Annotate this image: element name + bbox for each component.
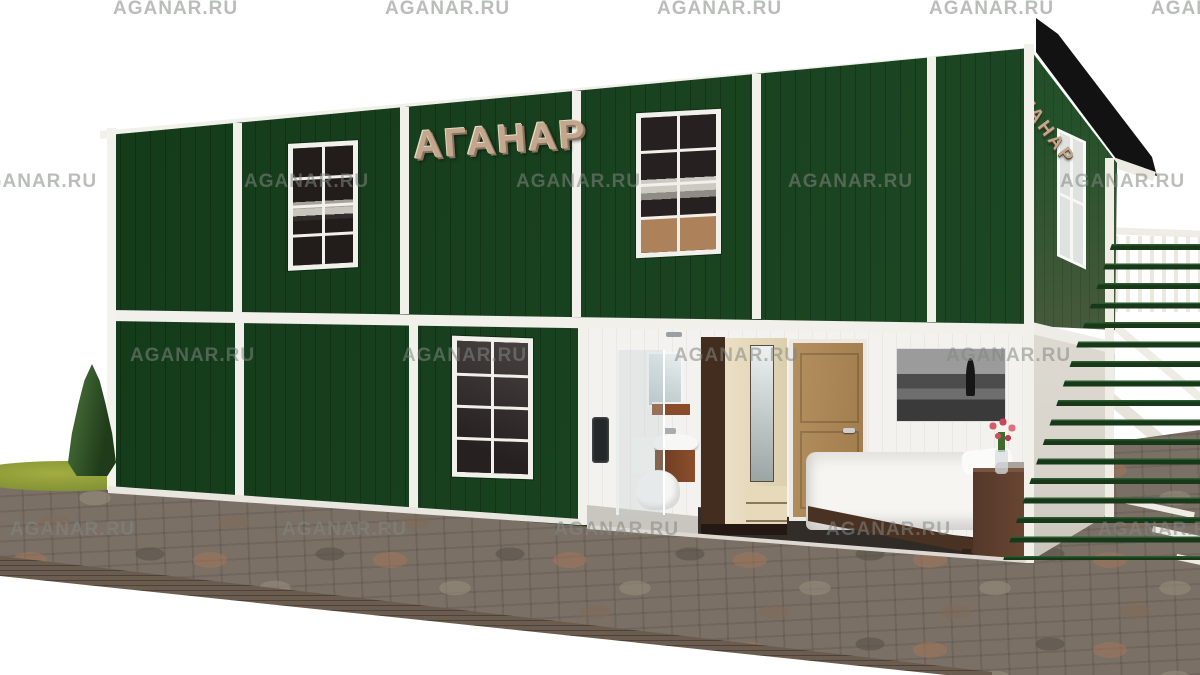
facade-trim <box>409 324 418 512</box>
facade-trim <box>752 74 761 319</box>
window-panes <box>457 341 528 474</box>
wall-art <box>896 348 1006 422</box>
watermark-text: AGANAR.RU <box>385 0 510 20</box>
shower-glass-panel <box>616 350 665 515</box>
wardrobe-side-panel <box>701 337 725 535</box>
scene: АГАНАР <box>0 0 1200 675</box>
facade-trim <box>927 57 936 322</box>
door-handle <box>843 428 855 433</box>
ceiling-vent <box>666 332 682 337</box>
window-upper-left <box>288 140 358 271</box>
window-upper-right <box>636 109 721 258</box>
wardrobe-plinth <box>701 524 787 535</box>
facade-trim <box>233 123 242 312</box>
window-panes <box>293 145 353 265</box>
flower-vase <box>995 450 1008 474</box>
facade-trim <box>400 107 409 314</box>
watermark-text: AGANAR.RU <box>657 0 782 20</box>
watermark-text: AGANAR.RU <box>1151 0 1200 20</box>
towel-radiator <box>592 417 609 463</box>
door-panel <box>800 353 859 423</box>
art-figure-silhouette <box>966 358 975 396</box>
wardrobe-drawers <box>746 486 787 524</box>
watermark-text: AGANAR.RU <box>0 171 97 193</box>
watermark-text: AGANAR.RU <box>113 0 238 20</box>
facade-trim <box>578 326 587 525</box>
watermark-text: AGANAR.RU <box>929 0 1054 20</box>
wardrobe-mirror <box>750 345 774 482</box>
window-lower <box>452 336 533 480</box>
roses <box>985 416 1019 446</box>
window-panes <box>641 114 716 253</box>
facade-trim <box>235 321 244 498</box>
